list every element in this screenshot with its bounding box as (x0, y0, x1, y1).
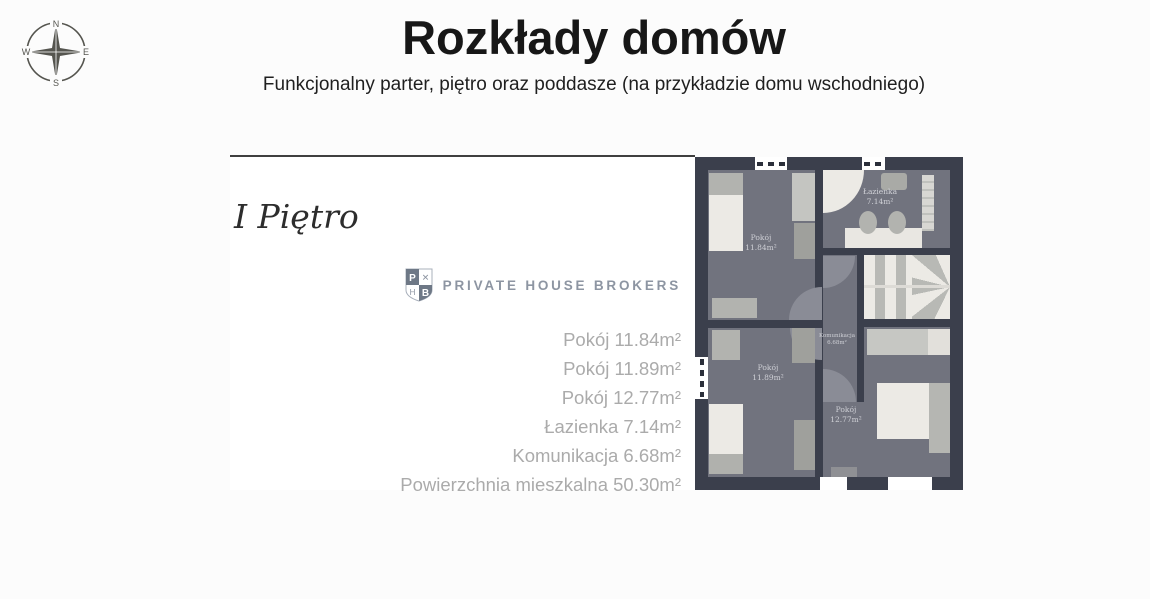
floorplan: Pokój11.84m² Łazienka7.14m² Pokój11.89m²… (695, 157, 963, 490)
list-item: Powierzchnia mieszkalna 50.30m² (400, 470, 681, 499)
list-item: Pokój 11.84m² (400, 325, 681, 354)
room-label: Pokój11.84m² (721, 233, 801, 253)
staircase (864, 255, 950, 319)
towel-radiator (922, 175, 934, 231)
page-subtitle: Funkcjonalny parter, piętro oraz poddasz… (38, 74, 1150, 96)
roof-window (755, 157, 787, 170)
wardrobe-section (928, 329, 950, 355)
wardrobe (792, 173, 815, 221)
room-label: Pokój12.77m² (806, 405, 886, 425)
dresser (712, 330, 740, 360)
bed-foot (709, 454, 743, 474)
bed-headboard (929, 383, 950, 453)
floor-title: I Piętro (234, 197, 359, 236)
sink (859, 211, 877, 234)
list-item: Pokój 11.89m² (400, 354, 681, 383)
list-item: Pokój 12.77m² (400, 383, 681, 412)
rug (712, 298, 757, 318)
page-title: Rozkłady domów (38, 10, 1150, 65)
bed (709, 404, 743, 456)
vanity-counter (845, 228, 922, 248)
brand-logo: P ✕ H B PRIVATE HOUSE BROKERS (405, 268, 681, 302)
bottom-window (888, 477, 932, 490)
list-item: Komunikacja 6.68m² (400, 441, 681, 470)
roof-window (862, 157, 885, 170)
shelf (794, 420, 815, 470)
svg-text:P: P (409, 273, 416, 284)
side-window (695, 357, 708, 399)
svg-text:B: B (422, 288, 429, 299)
room-label: Pokój11.89m² (728, 363, 808, 383)
header: Rozkłady domów Funkcjonalny parter, pięt… (0, 0, 1150, 96)
sink (888, 211, 906, 234)
svg-text:H: H (409, 288, 415, 297)
floor-info-panel: I Piętro P ✕ H B PRIVATE HOUSE BROKERS P… (230, 155, 695, 490)
brand-name: PRIVATE HOUSE BROKERS (443, 278, 681, 293)
bed-headboard (709, 173, 743, 195)
list-item: Łazienka 7.14m² (400, 412, 681, 441)
room-label: Łazienka7.14m² (840, 187, 920, 207)
brand-shield-icon: P ✕ H B (405, 268, 433, 302)
room-label: Komunikacja6.68m² (807, 333, 867, 348)
bottom-opening (820, 477, 847, 490)
dresser (831, 467, 857, 477)
room-area-list: Pokój 11.84m² Pokój 11.89m² Pokój 12.77m… (400, 325, 681, 499)
svg-text:✕: ✕ (421, 273, 429, 283)
stair-midline (864, 285, 950, 288)
